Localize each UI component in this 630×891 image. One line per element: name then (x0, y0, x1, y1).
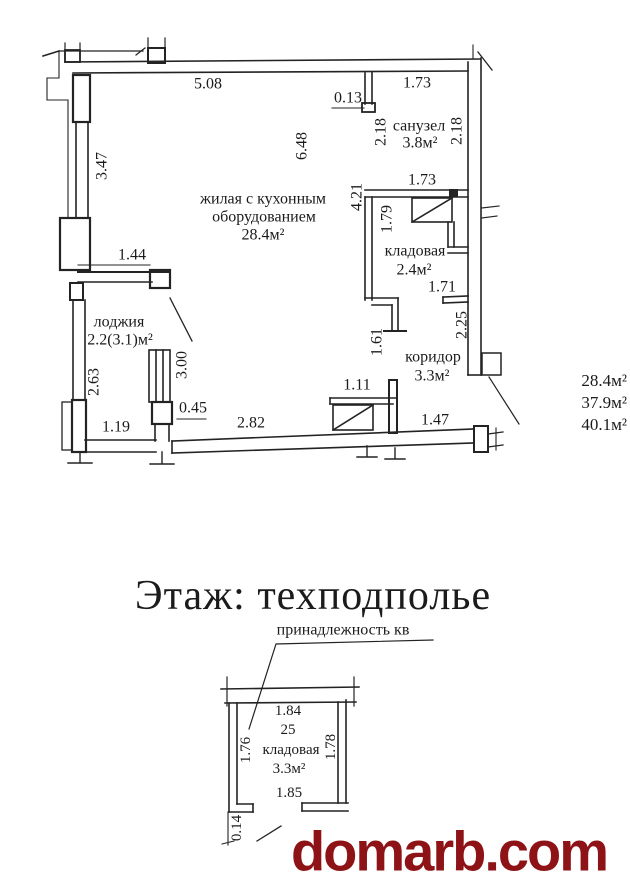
room-loggia-name: лоджия (94, 315, 145, 332)
domarb-watermark: domarb.com (291, 823, 607, 882)
room-bathroom-area: 3.8м² (403, 136, 438, 153)
room-storage-area: 2.4м² (397, 263, 432, 280)
dim-bath-height-right: 2.18 (450, 117, 467, 145)
dim-left-height: 3.47 (95, 152, 112, 180)
dim-inner-height: 4.21 (350, 183, 367, 211)
dim-bottom-left: 2.82 (237, 416, 265, 433)
basement-room-area: 3.3м² (273, 762, 306, 778)
top-extension-lines (43, 38, 165, 62)
basement-title: Этаж: техподполье (135, 574, 491, 618)
right-wall (468, 45, 519, 424)
dim-top-width: 5.08 (194, 77, 222, 94)
room-corridor-name: коридор (405, 350, 461, 367)
basement-dim-bottom: 1.85 (276, 786, 302, 802)
dim-bottom-right: 1.47 (421, 413, 449, 430)
dim-window: 3.00 (175, 351, 192, 379)
dim-pier: 0.45 (179, 401, 207, 418)
dim-loggia-top: 1.44 (118, 248, 146, 265)
bottom-wall (172, 426, 503, 459)
dim-living-height: 6.48 (295, 132, 312, 160)
area-summary-net: 37.9м² (581, 394, 627, 412)
basement-dim-top: 1.84 (275, 704, 301, 720)
room-living-name-line1: жилая с кухонным (200, 192, 326, 209)
room-living-name-line2: оборудованием (212, 210, 316, 227)
dim-storage-height: 1.79 (380, 205, 397, 233)
dim-loggia-height: 2.63 (87, 368, 104, 396)
scanned-floor-plan-page: 5.08 0.13 1.73 3.47 6.48 2.18 2.18 сануз… (0, 0, 630, 891)
basement-room-name: кладовая (262, 743, 319, 759)
dim-storage-width: 1.71 (428, 280, 456, 297)
dim-door: 1.11 (343, 378, 370, 395)
basement-dim-right: 1.78 (324, 734, 340, 760)
left-wall (47, 51, 90, 270)
ownership-note: принадлежность кв (277, 623, 410, 640)
basement-dim-left: 1.76 (239, 737, 255, 763)
dim-storage-wall: 1.61 (370, 328, 387, 356)
dim-niche: 0.13 (334, 91, 362, 108)
room-storage-name: кладовая (385, 244, 446, 261)
area-summary-living: 28.4м² (581, 372, 627, 390)
room-corridor-area: 3.3м² (415, 369, 450, 386)
dim-bath-width-top: 1.73 (403, 76, 431, 93)
basement-dim-wall: 0.14 (230, 815, 246, 841)
room-bathroom-name: санузел (393, 119, 445, 136)
dim-corridor-height: 2.25 (455, 311, 472, 339)
room-loggia-area: 2.2(3.1)м² (87, 333, 153, 350)
room-living-area: 28.4м² (242, 228, 285, 245)
area-summary-total: 40.1м² (581, 416, 627, 434)
basement-unit-number: 25 (281, 723, 296, 739)
dim-loggia-bottom: 1.19 (102, 420, 130, 437)
top-wall (65, 48, 480, 73)
dim-bath-width-bottom: 1.73 (408, 173, 436, 190)
dim-bath-height-left: 2.18 (374, 118, 391, 146)
